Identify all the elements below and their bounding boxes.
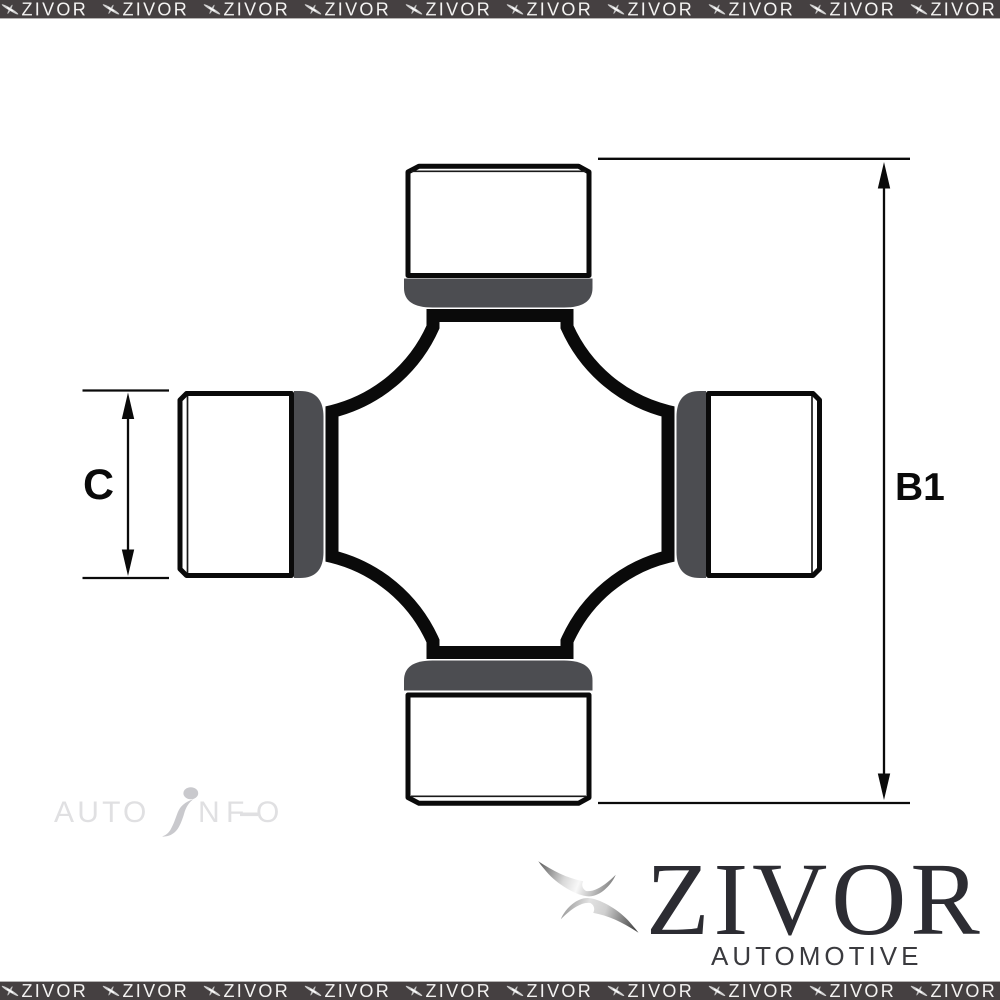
svg-text:O: O (256, 796, 279, 829)
svg-text:AUTOMOTIVE: AUTOMOTIVE (711, 941, 922, 971)
svg-text:C: C (83, 461, 114, 509)
svg-text:B1: B1 (895, 466, 945, 509)
svg-text:ZIVOR: ZIVOR (646, 842, 984, 957)
svg-text:N: N (198, 796, 220, 829)
svg-text:AUTO: AUTO (54, 796, 150, 829)
